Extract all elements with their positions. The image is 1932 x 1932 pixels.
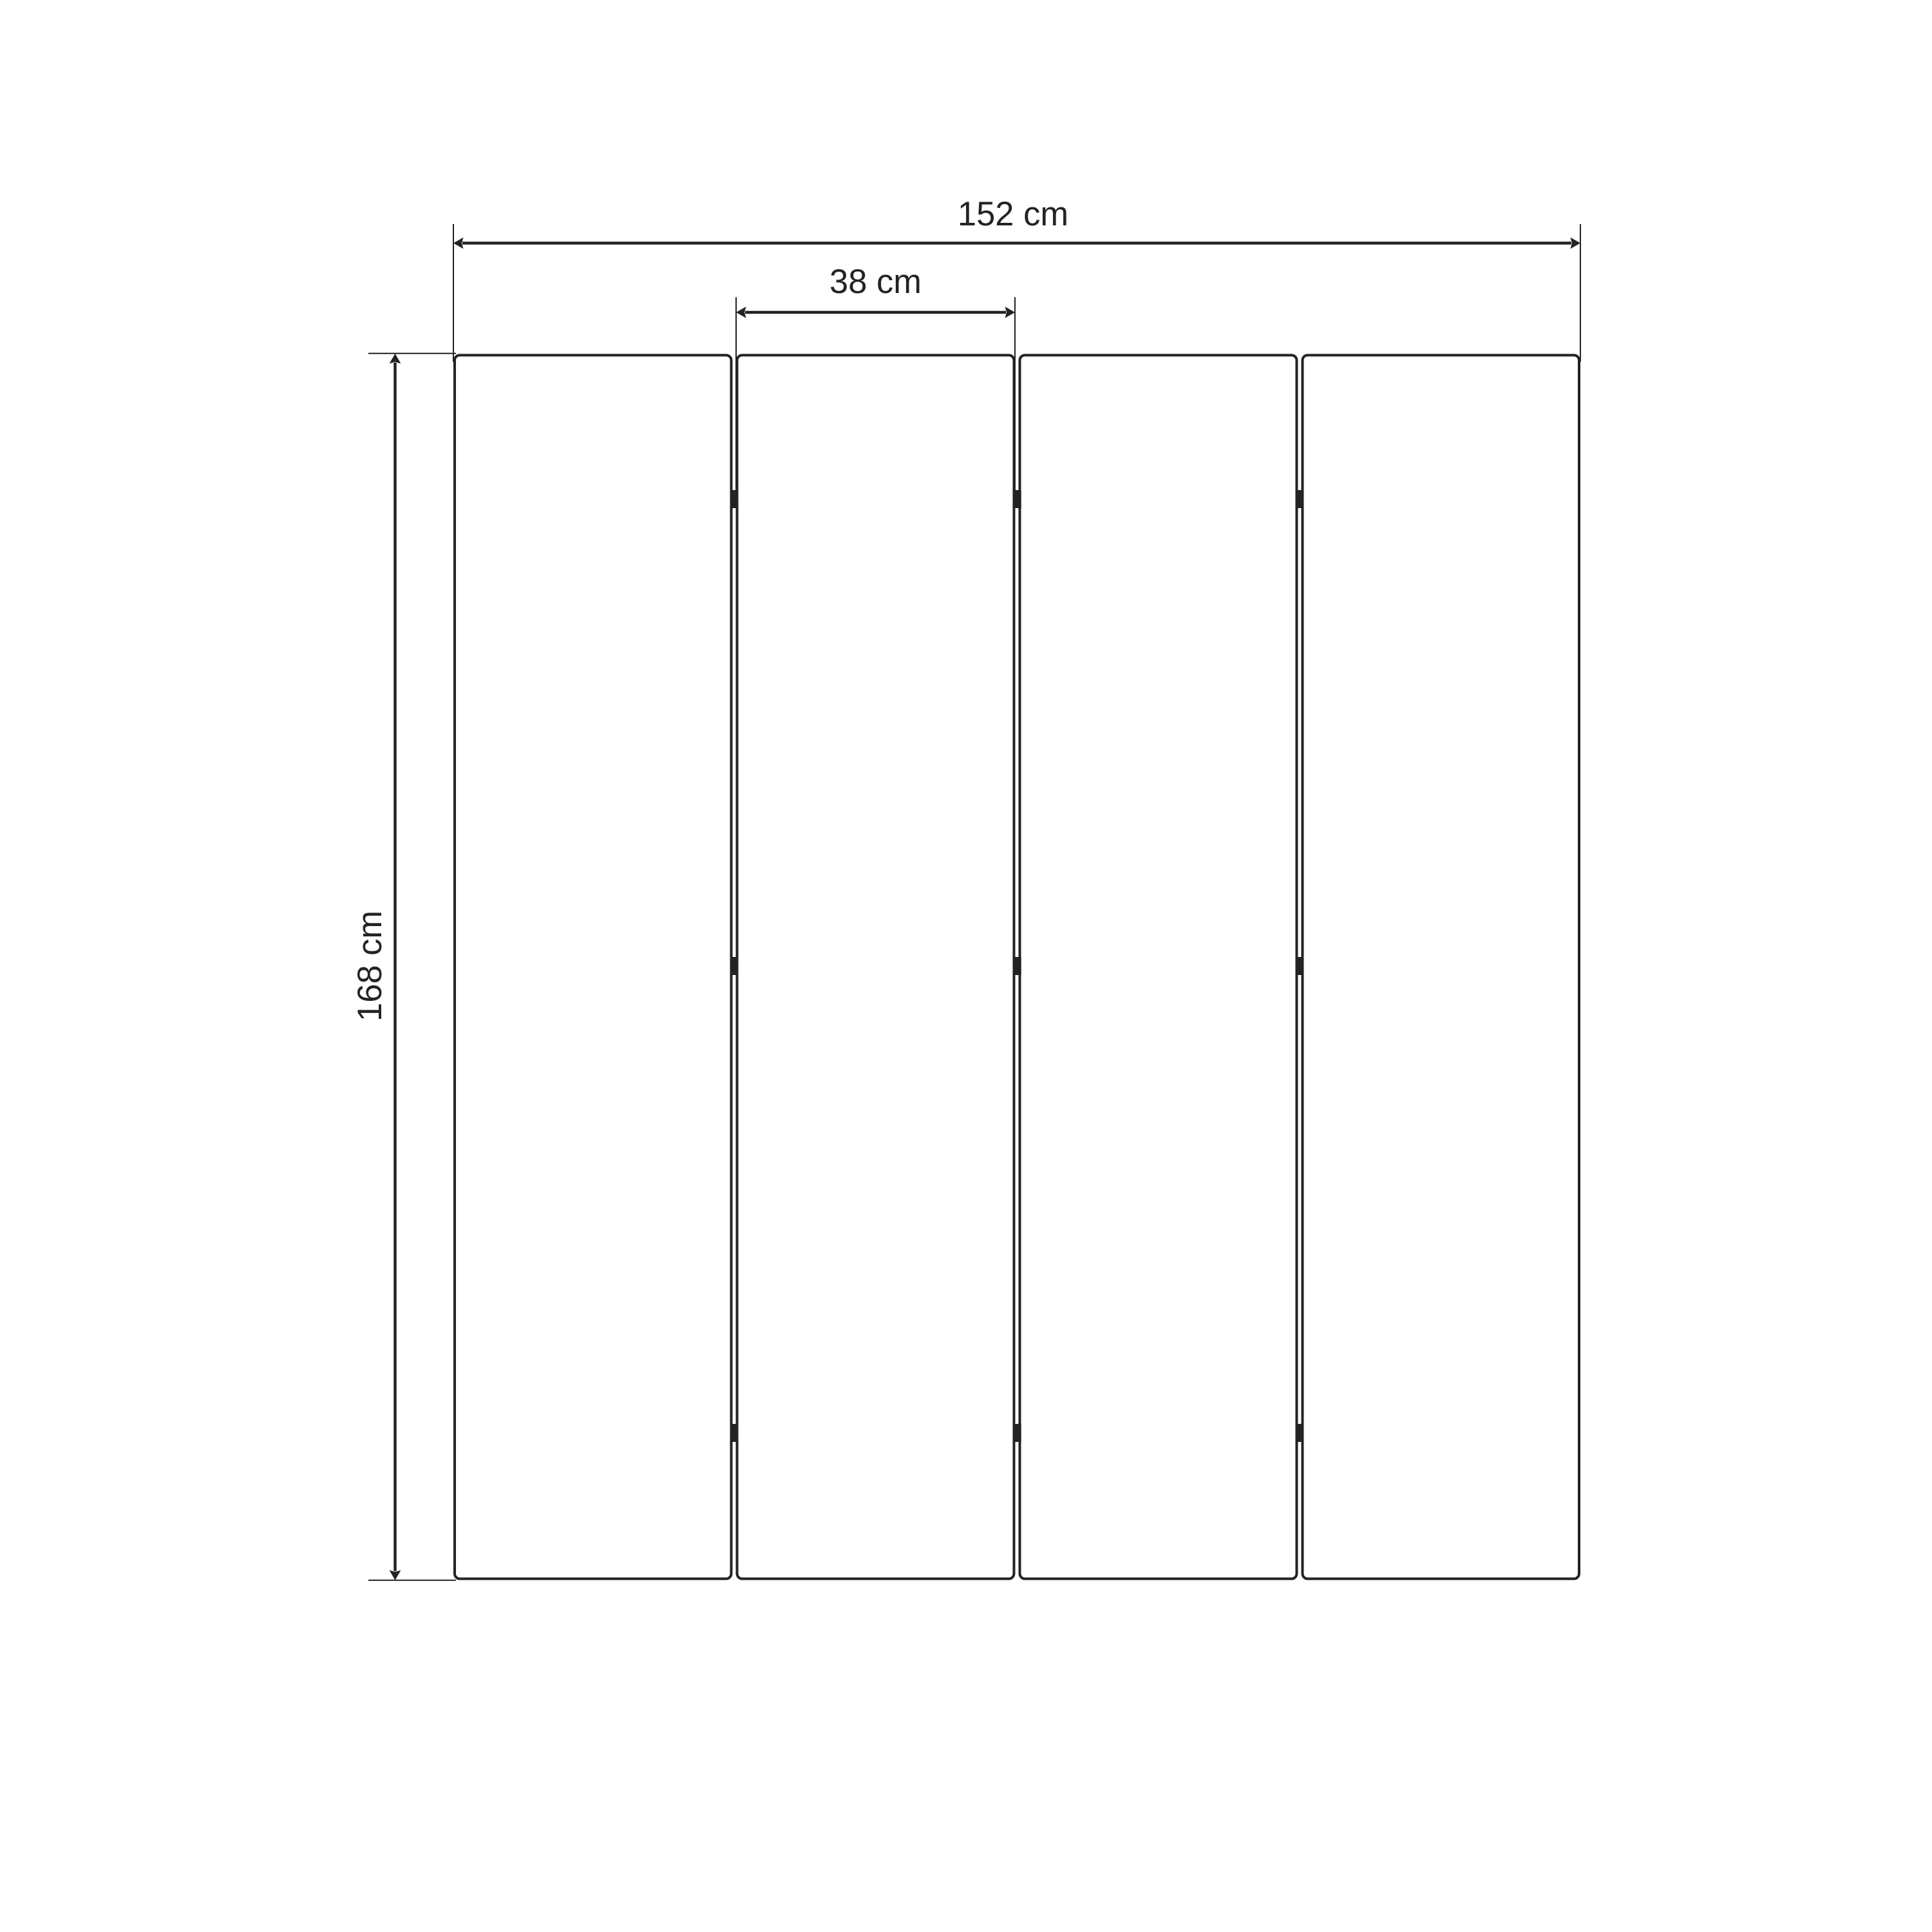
svg-text:152 cm: 152 cm (958, 195, 1068, 233)
svg-text:168 cm: 168 cm (351, 911, 389, 1021)
svg-text:38 cm: 38 cm (829, 263, 922, 301)
